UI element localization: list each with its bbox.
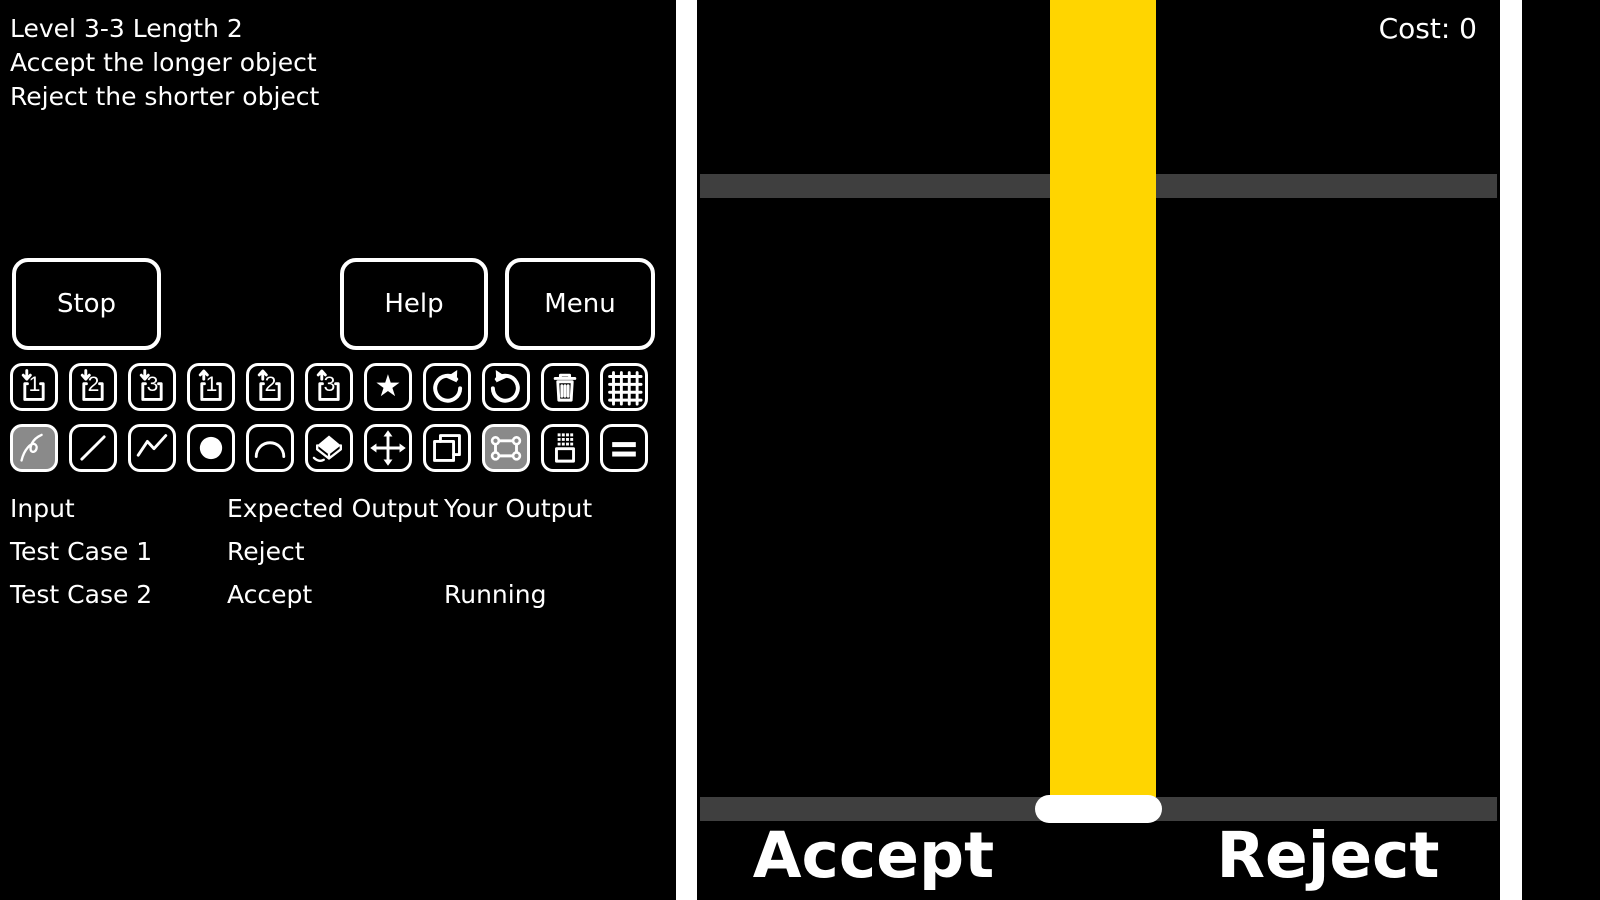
test-case-row: Test Case 1 Reject bbox=[10, 537, 664, 580]
polyline-icon bbox=[131, 427, 173, 469]
level-info: Level 3-3 Length 2 Accept the longer obj… bbox=[10, 12, 319, 114]
grid-toggle-button[interactable] bbox=[600, 363, 648, 411]
particles-into-box-icon bbox=[544, 427, 586, 469]
filled-circle-icon bbox=[190, 427, 232, 469]
favorite-button[interactable]: ★ bbox=[364, 363, 412, 411]
table-header-row: Input Expected Output Your Output bbox=[10, 494, 664, 537]
test-case-row: Test Case 2 Accept Running bbox=[10, 580, 664, 623]
star-icon: ★ bbox=[367, 368, 409, 406]
undo-button[interactable] bbox=[423, 363, 471, 411]
test-case-name: Test Case 2 bbox=[10, 580, 227, 609]
select-tool-button[interactable] bbox=[482, 424, 530, 472]
reject-zone-label: Reject bbox=[1156, 824, 1500, 887]
load-slot-1-button[interactable]: 1 bbox=[187, 363, 235, 411]
circle-tool-button[interactable] bbox=[187, 424, 235, 472]
left-wall bbox=[676, 0, 697, 900]
slot-digit: 2 bbox=[73, 374, 114, 395]
save-slot-1-button[interactable]: 1 bbox=[10, 363, 58, 411]
line-tool-button[interactable] bbox=[69, 424, 117, 472]
yellow-chute bbox=[1050, 0, 1156, 797]
spray-box-tool-button[interactable] bbox=[541, 424, 589, 472]
copy-icon bbox=[426, 427, 468, 469]
slot-digit: 1 bbox=[14, 374, 55, 395]
freehand-tool-button[interactable] bbox=[10, 424, 58, 472]
expected-output-cell: Reject bbox=[227, 537, 444, 566]
column-header-expected: Expected Output bbox=[227, 494, 444, 523]
stop-button[interactable]: Stop bbox=[12, 258, 161, 350]
move-arrows-icon bbox=[367, 427, 409, 469]
arc-icon bbox=[249, 427, 291, 469]
delete-button[interactable] bbox=[541, 363, 589, 411]
redo-icon bbox=[485, 366, 527, 408]
trash-icon bbox=[544, 366, 586, 408]
selection-rect-icon bbox=[485, 427, 527, 469]
save-slot-3-button[interactable]: 3 bbox=[128, 363, 176, 411]
test-case-name: Test Case 1 bbox=[10, 537, 227, 566]
level-goal-line1: Accept the longer object bbox=[10, 46, 319, 80]
slot-digit: 3 bbox=[132, 374, 173, 395]
toolbar-row-1: 1 2 3 1 2 3 ★ bbox=[10, 363, 648, 411]
test-results-table: Input Expected Output Your Output Test C… bbox=[10, 494, 664, 623]
column-header-input: Input bbox=[10, 494, 227, 523]
copy-tool-button[interactable] bbox=[423, 424, 471, 472]
cost-label: Cost: 0 bbox=[1379, 12, 1477, 45]
move-tool-button[interactable] bbox=[364, 424, 412, 472]
load-slot-3-button[interactable]: 3 bbox=[305, 363, 353, 411]
arc-tool-button[interactable] bbox=[246, 424, 294, 472]
load-slot-2-button[interactable]: 2 bbox=[246, 363, 294, 411]
accept-zone-label: Accept bbox=[697, 824, 1050, 887]
eraser-icon bbox=[308, 427, 350, 469]
freehand-icon bbox=[13, 427, 55, 469]
your-output-cell: Running bbox=[444, 580, 664, 609]
redo-button[interactable] bbox=[482, 363, 530, 411]
level-goal-line2: Reject the shorter object bbox=[10, 80, 319, 114]
output-slot-pill bbox=[1035, 795, 1162, 823]
grid-icon bbox=[603, 366, 645, 408]
level-title: Level 3-3 Length 2 bbox=[10, 12, 319, 46]
save-slot-2-button[interactable]: 2 bbox=[69, 363, 117, 411]
undo-icon bbox=[426, 366, 468, 408]
double-bar-tool-button[interactable] bbox=[600, 424, 648, 472]
eraser-tool-button[interactable] bbox=[305, 424, 353, 472]
game-canvas[interactable]: Cost: 0 Accept Reject bbox=[697, 0, 1500, 900]
slot-digit: 2 bbox=[250, 374, 291, 395]
help-button[interactable]: Help bbox=[340, 258, 488, 350]
menu-button[interactable]: Menu bbox=[505, 258, 655, 350]
slot-digit: 1 bbox=[191, 374, 232, 395]
slot-digit: 3 bbox=[309, 374, 350, 395]
expected-output-cell: Accept bbox=[227, 580, 444, 609]
polyline-tool-button[interactable] bbox=[128, 424, 176, 472]
column-header-yours: Your Output bbox=[444, 494, 664, 523]
toolbar-row-2 bbox=[10, 424, 648, 472]
double-horizontal-bars-icon bbox=[603, 427, 645, 469]
right-wall bbox=[1500, 0, 1522, 900]
line-icon bbox=[72, 427, 114, 469]
